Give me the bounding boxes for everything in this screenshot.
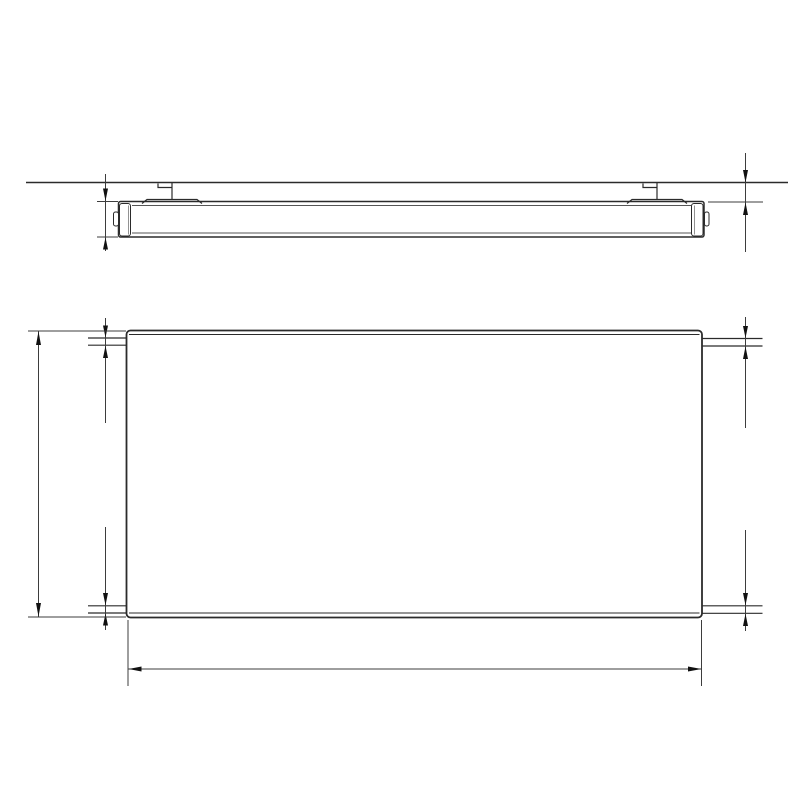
dimension-conn-top-left — [103, 318, 108, 423]
wall-bracket-right — [627, 183, 687, 204]
arrowhead-right — [688, 667, 702, 672]
arrowhead-up — [743, 347, 748, 360]
arrowhead-up — [103, 614, 108, 626]
radiator-side-body — [114, 202, 710, 238]
arrowhead-down — [103, 593, 108, 605]
dimension-conn-top-right — [743, 317, 748, 428]
side-view — [26, 153, 788, 252]
connection-stub-top-right — [703, 339, 763, 347]
dimension-width — [128, 620, 702, 686]
arrowhead-up — [743, 203, 748, 216]
arrowhead-up — [36, 332, 41, 346]
arrowhead-left — [129, 667, 142, 672]
radiator-drawing — [0, 0, 800, 800]
dimension-conn-bottom-left — [103, 527, 108, 630]
side-right-connection-stub — [705, 212, 710, 226]
connection-stub-bottom-left — [88, 606, 127, 613]
side-left-connection-stub — [114, 212, 119, 226]
side-right-end-cap — [692, 204, 704, 237]
dimension-height — [28, 331, 126, 617]
arrowhead-down — [36, 603, 41, 617]
connection-stub-bottom-right — [703, 606, 763, 614]
radiator-front-outline — [127, 331, 703, 618]
wall-bracket-left — [142, 183, 202, 204]
arrowhead-up — [103, 346, 108, 358]
arrowhead-up — [103, 238, 108, 250]
arrowhead-down — [743, 170, 748, 183]
dimension-conn-bottom-right — [743, 530, 748, 631]
arrowhead-down — [103, 189, 108, 202]
arrowhead-up — [743, 614, 748, 626]
arrowhead-down — [743, 326, 748, 338]
radiator-side-outline — [119, 202, 705, 238]
drawing-canvas — [0, 0, 800, 800]
dimension-wall-clearance — [708, 153, 763, 252]
front-view — [28, 317, 763, 686]
connection-stub-top-left — [88, 338, 127, 345]
arrowhead-down — [743, 593, 748, 605]
